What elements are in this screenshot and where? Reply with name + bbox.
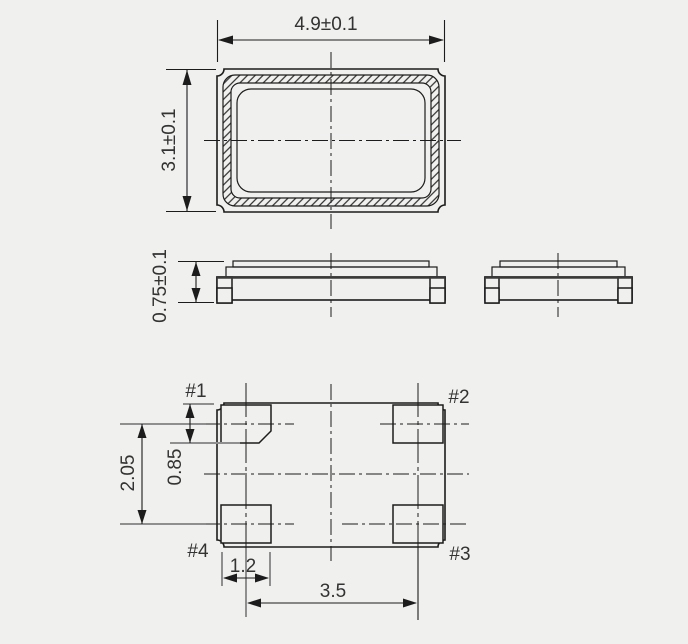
height-dim-label: 3.1±0.1 bbox=[159, 108, 180, 171]
pad-3-label: #3 bbox=[449, 544, 470, 565]
pad-1-label: #1 bbox=[185, 381, 206, 402]
width-dim-label: 4.9±0.1 bbox=[294, 14, 357, 35]
row-pitch-label: 2.05 bbox=[118, 455, 139, 492]
col-pitch-label: 3.5 bbox=[320, 581, 346, 602]
technical-drawing-canvas: 4.9±0.1 3.1±0.1 0.75±0.1 bbox=[0, 0, 688, 644]
end-view-terminal-left-hatch bbox=[485, 288, 499, 303]
side-view-terminal-right-hatch bbox=[430, 288, 445, 303]
package-dimension-drawing: 4.9±0.1 3.1±0.1 0.75±0.1 bbox=[0, 0, 688, 644]
end-view-terminal-right-hatch bbox=[618, 288, 632, 303]
pad-2-label: #2 bbox=[448, 387, 469, 408]
pad-width-label: 1.2 bbox=[230, 556, 256, 577]
pad-height-label: 0.85 bbox=[165, 449, 186, 486]
side-view-terminal-left-hatch bbox=[217, 288, 232, 303]
pad-4-label: #4 bbox=[187, 541, 209, 562]
side-height-dim-label: 0.75±0.1 bbox=[150, 249, 171, 323]
